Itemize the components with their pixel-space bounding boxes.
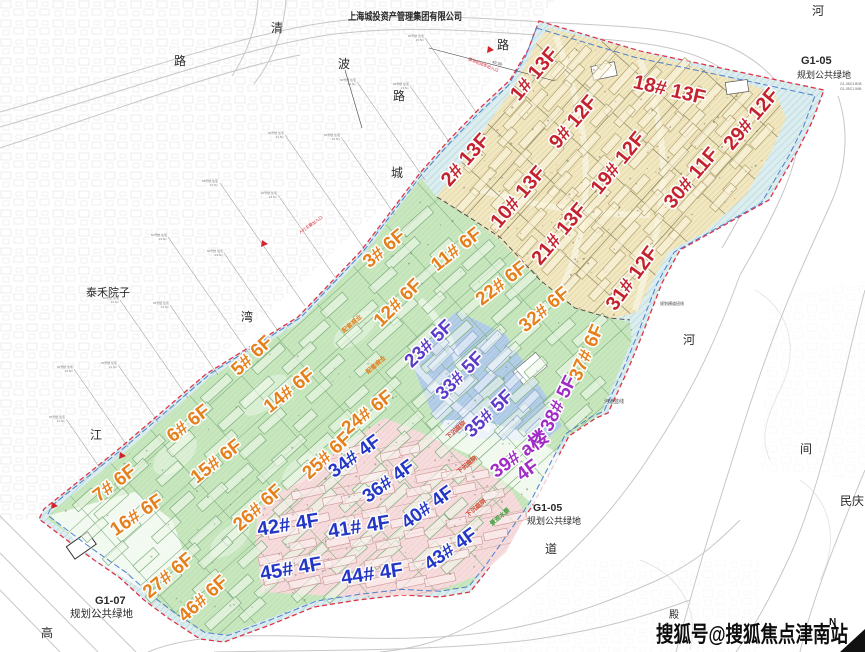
svg-text:23.5m: 23.5m	[276, 135, 285, 139]
svg-text:搜狐号@搜狐焦点津南站: 搜狐号@搜狐焦点津南站	[656, 622, 848, 647]
svg-text:23.5m: 23.5m	[332, 137, 341, 141]
svg-text:城: 城	[391, 166, 403, 180]
svg-text:G1-05: G1-05	[801, 55, 832, 67]
svg-text:23.5m: 23.5m	[210, 183, 219, 187]
svg-text:河: 河	[812, 4, 824, 18]
svg-text:23.5m: 23.5m	[159, 237, 168, 241]
svg-text:民庆: 民庆	[840, 494, 864, 508]
svg-text:河: 河	[683, 333, 695, 347]
svg-text:清: 清	[271, 21, 283, 35]
svg-text:上海城投资产管理集团有限公司: 上海城投资产管理集团有限公司	[348, 10, 462, 23]
svg-text:高: 高	[41, 625, 53, 640]
svg-text:G1-07: G1-07	[95, 595, 126, 607]
svg-text:23.5m: 23.5m	[215, 253, 224, 257]
svg-text:规划公共绿地: 规划公共绿地	[70, 607, 133, 620]
svg-text:23.5m: 23.5m	[416, 38, 425, 42]
svg-text:道: 道	[545, 542, 557, 556]
svg-text:规划横道班线: 规划横道班线	[660, 300, 684, 306]
svg-text:路: 路	[174, 53, 186, 68]
svg-text:23.5m: 23.5m	[65, 369, 74, 373]
svg-text:23.5m: 23.5m	[111, 300, 120, 304]
svg-text:路: 路	[393, 88, 405, 103]
svg-text:间: 间	[800, 442, 812, 456]
svg-text:路: 路	[497, 37, 509, 52]
svg-text:泰禾院子: 泰禾院子	[86, 285, 130, 299]
svg-text:G1-05C1.59B: G1-05C1.59B	[840, 87, 862, 91]
svg-text:规划公共绿地: 规划公共绿地	[797, 69, 851, 80]
svg-text:G1-05C3.B08: G1-05C3.B08	[840, 82, 861, 86]
svg-text:湾: 湾	[241, 309, 253, 324]
svg-text:规划公共绿地: 规划公共绿地	[527, 515, 581, 526]
svg-text:江: 江	[90, 428, 102, 442]
svg-text:河道蓝线: 河道蓝线	[604, 398, 624, 405]
svg-text:波: 波	[338, 57, 350, 71]
svg-text:23.5m: 23.5m	[269, 195, 278, 199]
svg-text:23.5m: 23.5m	[57, 419, 66, 423]
svg-text:殿: 殿	[669, 609, 679, 621]
svg-text:23.5m: 23.5m	[161, 305, 170, 309]
svg-text:G1-05: G1-05	[533, 502, 562, 514]
svg-text:23.5m: 23.5m	[109, 365, 118, 369]
